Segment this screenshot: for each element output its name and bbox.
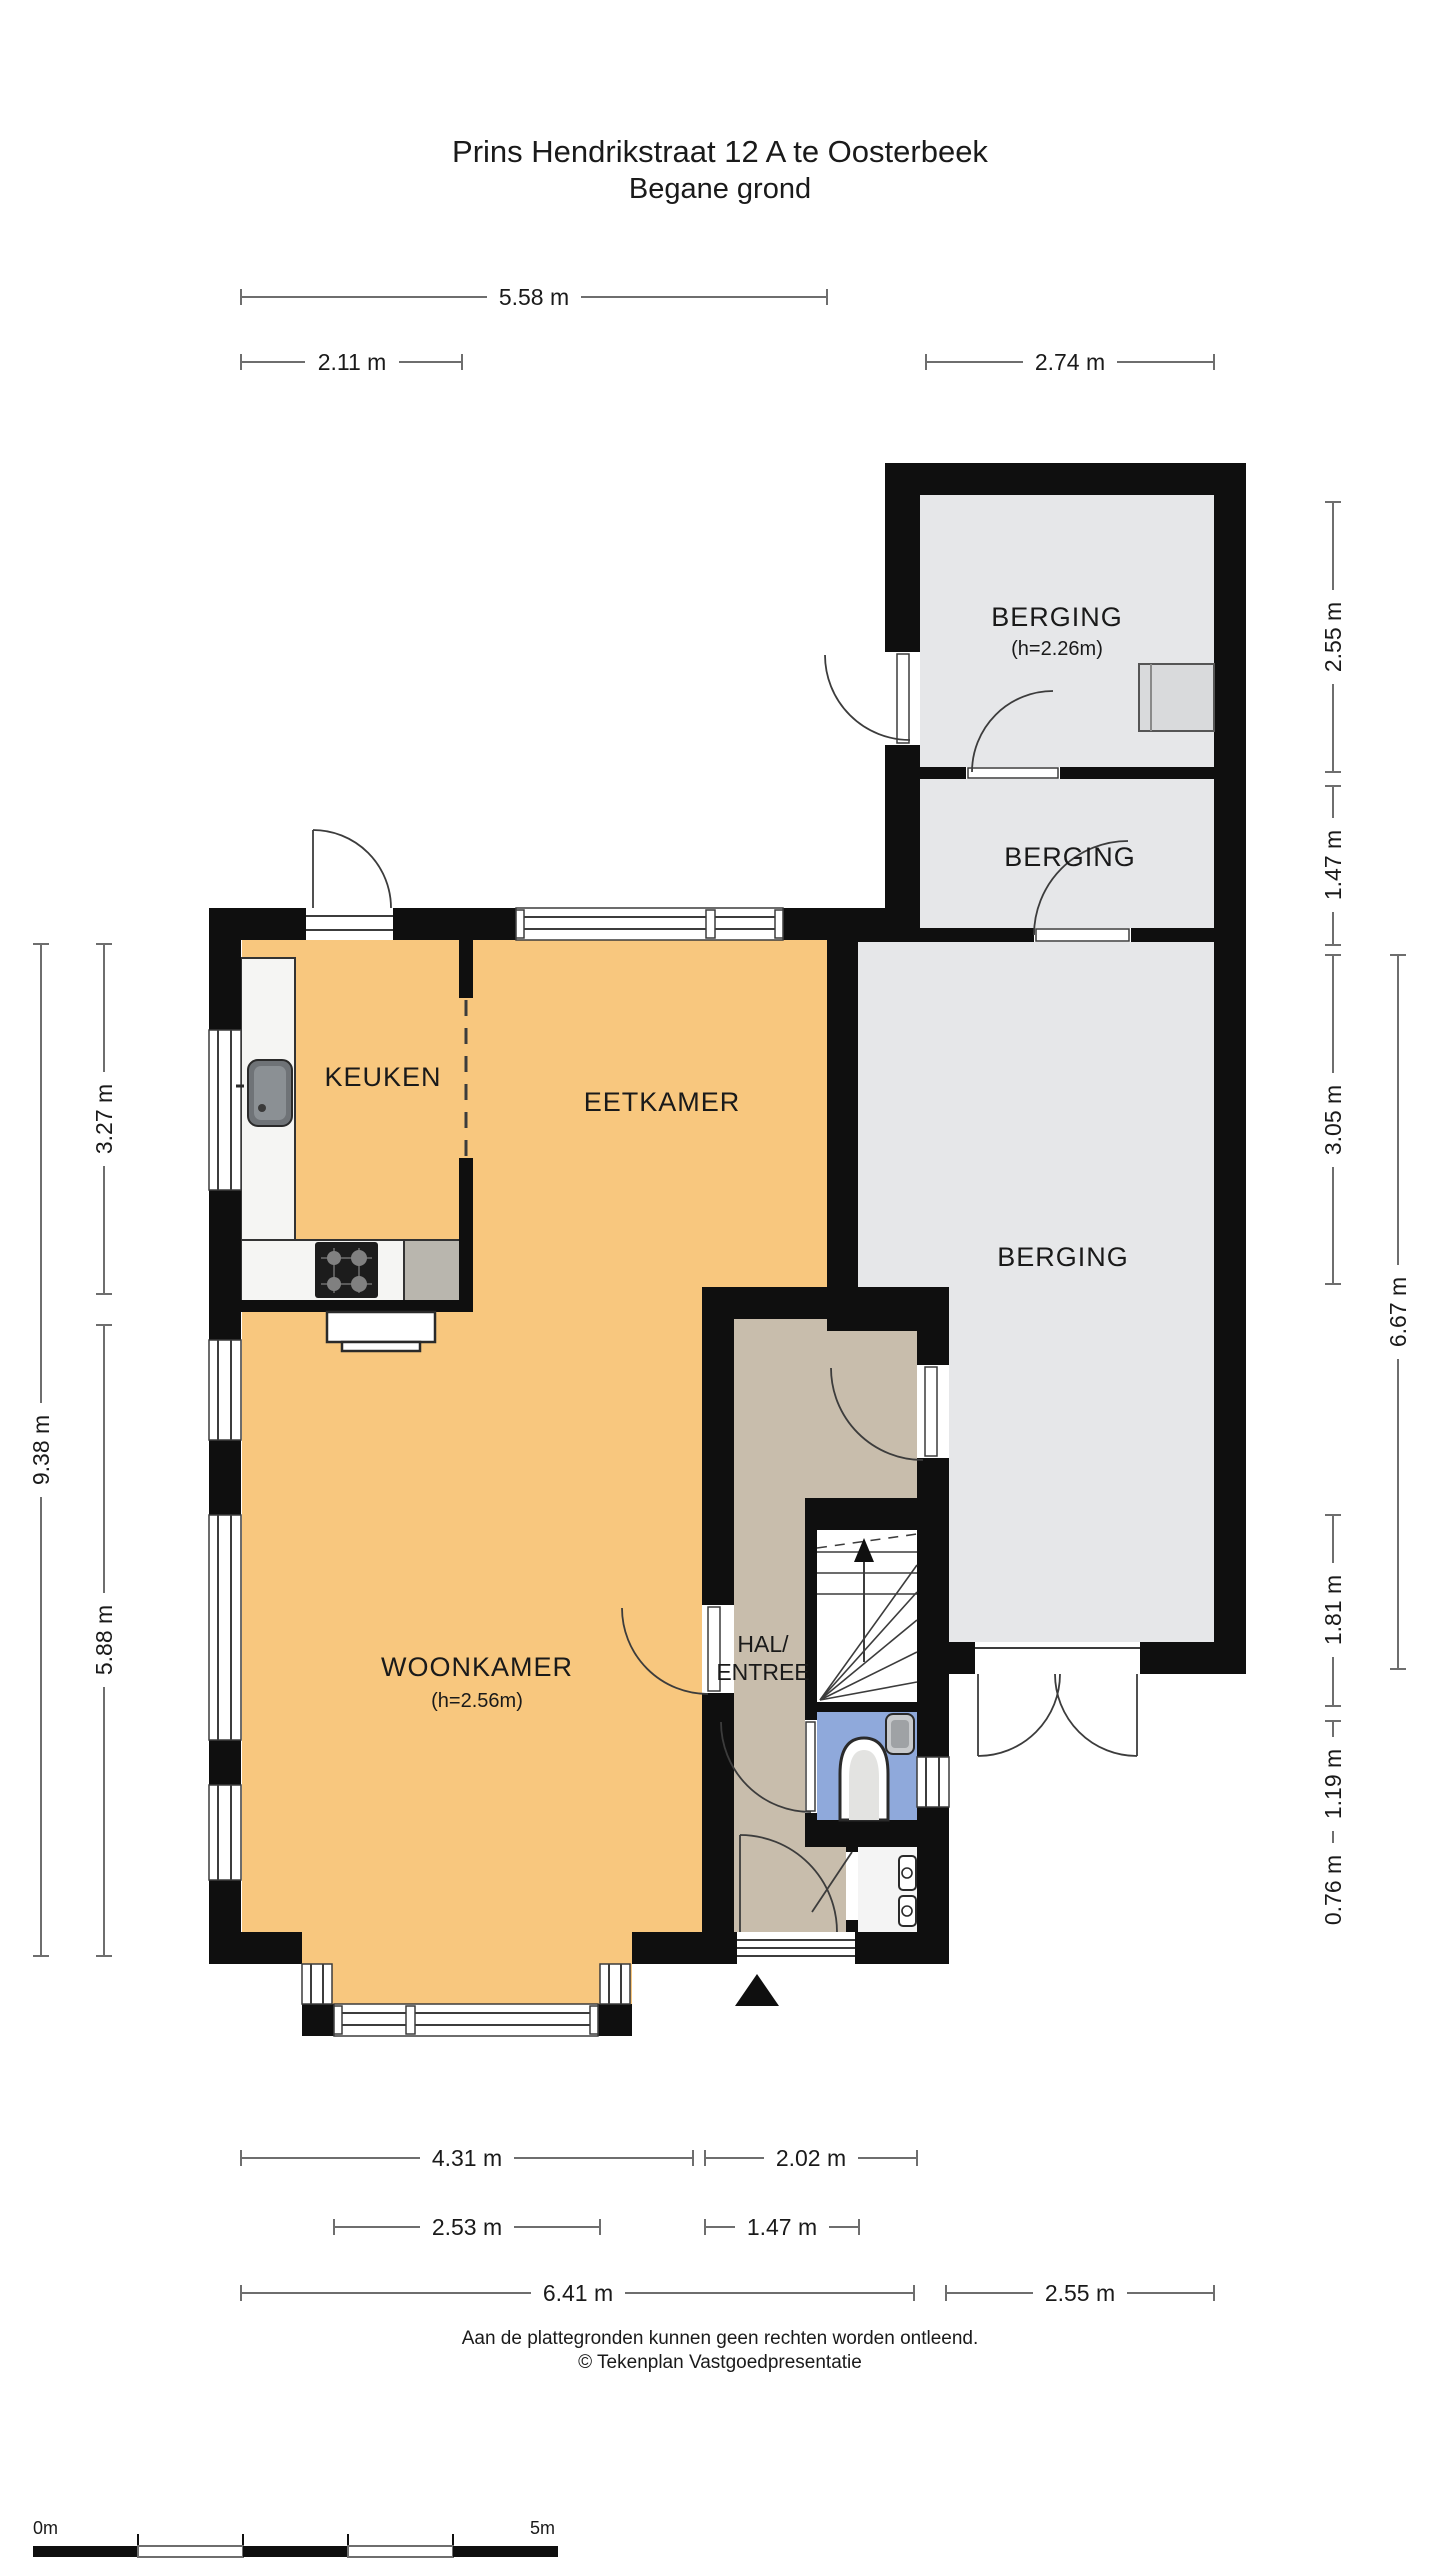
wall-partition-keuken-top: [459, 936, 473, 998]
svg-text:2.55 m: 2.55 m: [1320, 602, 1346, 672]
svg-text:4.31 m: 4.31 m: [432, 2145, 502, 2171]
svg-text:2.02 m: 2.02 m: [776, 2145, 846, 2171]
svg-text:9.38 m: 9.38 m: [28, 1415, 54, 1485]
footer: Aan de plattegronden kunnen geen rechten…: [462, 2328, 979, 2373]
woonkamer-window-1: [209, 1340, 241, 1440]
room-label-berging-top: BERGING: [991, 602, 1123, 632]
wall-eetkamer-east: [827, 936, 858, 1331]
scale-bar-end-label: 5m: [530, 2518, 555, 2538]
floor-woonkamer: [242, 1287, 702, 1932]
svg-text:1.47 m: 1.47 m: [1320, 830, 1346, 900]
floor-keuken-eetkamer: [242, 936, 831, 1287]
woonkamer-window-3: [209, 1785, 241, 1880]
room-label-berging-top-height: (h=2.26m): [1011, 638, 1103, 660]
dim-bottom-berging: 2.55 m: [946, 2278, 1214, 2308]
svg-text:2.55 m: 2.55 m: [1045, 2280, 1115, 2306]
stove-icon: [315, 1242, 378, 1298]
berging-top-door: [825, 652, 920, 745]
svg-text:3.05 m: 3.05 m: [1320, 1085, 1346, 1155]
svg-text:1.47 m: 1.47 m: [747, 2214, 817, 2240]
dim-right-total: 6.67 m: [1383, 955, 1413, 1669]
wall-keuken-woonkamer: [241, 1300, 473, 1312]
dim-bottom-hal: 2.02 m: [705, 2143, 917, 2173]
wall-hal-top: [702, 1287, 831, 1319]
chimney-breast: [327, 1312, 435, 1351]
dim-bottom-bay: 2.53 m: [334, 2212, 600, 2242]
entrance-arrow-icon: [735, 1974, 779, 2006]
footer-disclaimer: Aan de plattegronden kunnen geen rechten…: [462, 2328, 979, 2349]
dim-bottom-total: 6.41 m: [241, 2278, 914, 2308]
svg-text:2.11 m: 2.11 m: [318, 349, 387, 375]
counter-gray: [404, 1240, 461, 1302]
wall-wing-east: [1214, 463, 1246, 1674]
room-label-berging-large: BERGING: [997, 1242, 1129, 1272]
wall-partition-keuken-bottom: [459, 1158, 473, 1304]
room-label-eetkamer: EETKAMER: [584, 1087, 741, 1117]
dim-top-left: 2.11 m: [241, 347, 462, 377]
svg-text:2.53 m: 2.53 m: [432, 2214, 502, 2240]
svg-text:1.19 m: 1.19 m: [1320, 1749, 1346, 1819]
wall-stairs-top: [805, 1498, 917, 1530]
dim-right-berging-top: 2.55 m: [1318, 502, 1348, 772]
svg-text:5.58 m: 5.58 m: [499, 284, 569, 310]
svg-text:5.88 m: 5.88 m: [91, 1605, 117, 1675]
room-label-woonkamer: WOONKAMER: [381, 1652, 573, 1682]
floorplan: BERGING (h=2.26m) BERGING BERGING KEUKEN…: [0, 0, 1440, 2560]
footer-copyright: © Tekenplan Vastgoedpresentatie: [578, 2352, 862, 2373]
dim-bottom-woonkamer: 4.31 m: [241, 2143, 693, 2173]
dim-right-meterkast: 0.76 m: [1318, 1843, 1348, 1937]
room-label-hal-2: ENTREE: [716, 1659, 809, 1685]
toilet-washbasin-icon: [886, 1714, 914, 1754]
berging-double-door: [975, 1642, 1140, 1756]
wall-toilet-south: [805, 1820, 917, 1847]
wall-bottom-mid: [632, 1932, 737, 1964]
dim-left-lower: 5.88 m: [89, 1325, 119, 1956]
dim-top-right: 2.74 m: [926, 347, 1214, 377]
wall-berging-top-mid: [920, 767, 1214, 779]
header: Prins Hendrikstraat 12 A te Oosterbeek B…: [452, 134, 988, 205]
room-label-berging-mid: BERGING: [1004, 842, 1136, 872]
page-subtitle: Begane grond: [629, 173, 811, 205]
scale-bar-start-label: 0m: [33, 2518, 58, 2538]
svg-text:0.76 m: 0.76 m: [1320, 1855, 1346, 1925]
dim-bottom-entry: 1.47 m: [705, 2212, 859, 2242]
wall-bay-corner-left: [302, 2004, 334, 2036]
room-label-keuken: KEUKEN: [324, 1062, 441, 1092]
room-label-woonkamer-height: (h=2.56m): [431, 1690, 523, 1712]
workbench: [1139, 664, 1214, 731]
eetkamer-window: [516, 908, 783, 940]
dim-right-berging-mid: 1.47 m: [1318, 786, 1348, 945]
dim-right-stairs: 1.81 m: [1318, 1515, 1348, 1706]
wall-bay-corner-right: [598, 2004, 632, 2036]
dim-right-toilet: 1.19 m: [1318, 1721, 1348, 1847]
keuken-exterior-door: [306, 830, 393, 940]
floor-bay: [302, 1932, 632, 2004]
page-title: Prins Hendrikstraat 12 A te Oosterbeek: [452, 134, 988, 169]
keuken-window: [209, 1030, 241, 1190]
dim-left-upper: 3.27 m: [89, 944, 119, 1294]
svg-text:2.74 m: 2.74 m: [1035, 349, 1105, 375]
toilet-fixture-icon: [840, 1738, 888, 1820]
dim-left-total: 9.38 m: [26, 944, 56, 1956]
svg-text:1.81 m: 1.81 m: [1320, 1575, 1346, 1645]
wall-bottom-left: [209, 1932, 302, 1964]
svg-text:3.27 m: 3.27 m: [91, 1084, 117, 1154]
scale-bar: 0m 5m: [33, 2518, 558, 2557]
dim-top-total: 5.58 m: [241, 282, 827, 312]
woonkamer-window-2: [209, 1515, 241, 1740]
svg-text:6.41 m: 6.41 m: [543, 2280, 613, 2306]
toilet-window: [917, 1757, 949, 1807]
svg-text:6.67 m: 6.67 m: [1385, 1277, 1411, 1347]
room-label-hal-1: HAL/: [737, 1631, 789, 1657]
dim-right-berging-large: 3.05 m: [1318, 955, 1348, 1284]
wall-wing-north: [885, 463, 1246, 495]
wall-toilet-north: [817, 1702, 917, 1712]
